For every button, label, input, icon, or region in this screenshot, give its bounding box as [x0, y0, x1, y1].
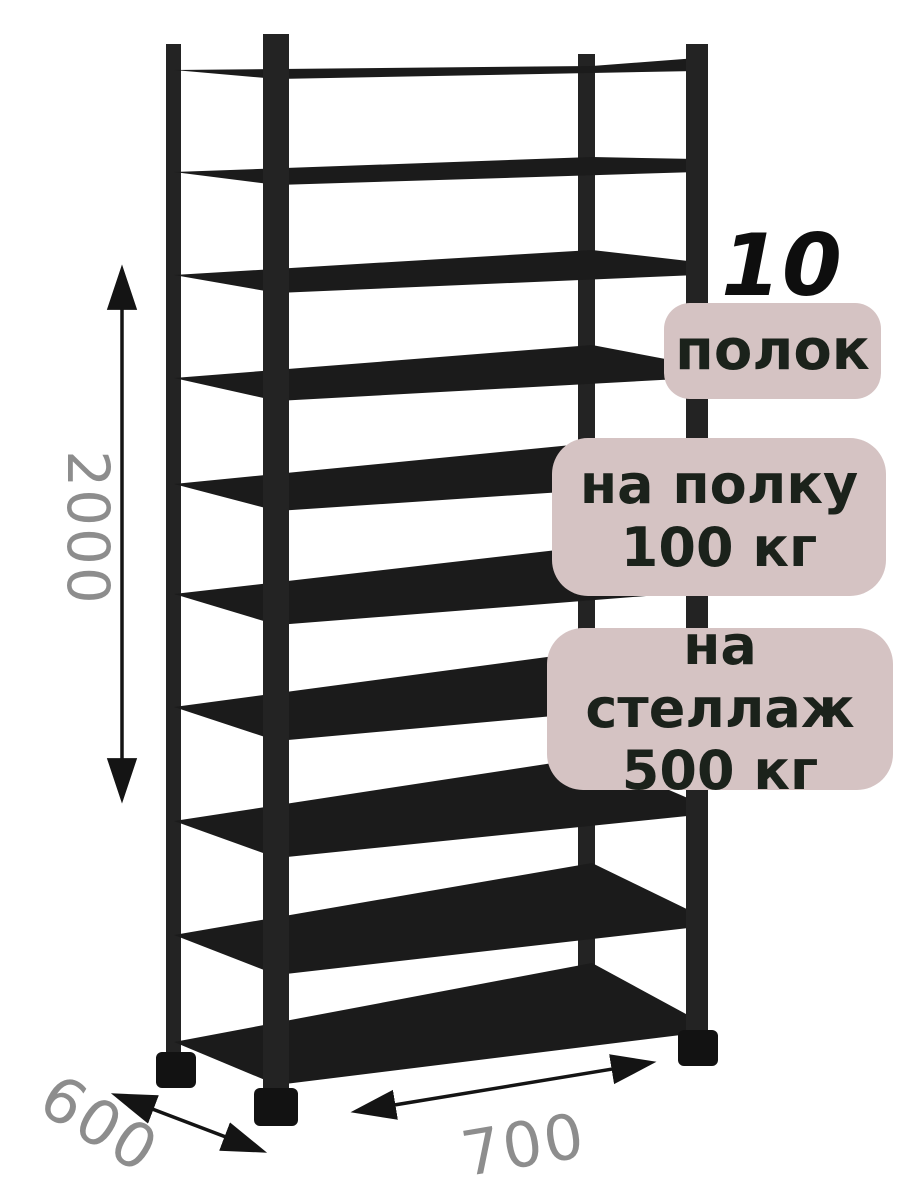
per-rack-load-line2: 500 кг [622, 740, 818, 803]
shelf [174, 863, 697, 975]
shelf [174, 157, 697, 185]
per-rack-load-line1: на стеллаж [547, 615, 893, 740]
depth-dimension-label: 600 [27, 1060, 171, 1188]
shelf [174, 58, 697, 79]
product-dimension-diagram: 2000 600 700 10 полок на полку 100 кг на… [0, 0, 900, 1200]
per-shelf-load-line1: на полку [580, 454, 858, 517]
front-right-foot [678, 1030, 718, 1066]
shelf [174, 250, 697, 293]
per-rack-load-badge: на стеллаж 500 кг [547, 628, 893, 790]
shelf-count-badge: полок [664, 303, 881, 399]
per-shelf-load-line2: 100 кг [621, 517, 817, 580]
front-left-post [263, 34, 289, 1094]
shelf [174, 345, 697, 401]
shelf-count-number: 10 [712, 216, 852, 316]
front-left-foot [254, 1088, 298, 1126]
back-left-foot [156, 1052, 196, 1088]
width-dimension-label: 700 [456, 1099, 591, 1192]
height-dimension-label: 2000 [54, 450, 122, 606]
back-left-post [166, 44, 181, 1058]
width-arrow [358, 1063, 649, 1111]
shelf-count-label: полок [675, 319, 870, 384]
rack-illustration: 2000 600 700 [0, 0, 900, 1200]
per-shelf-load-badge: на полку 100 кг [552, 438, 886, 596]
